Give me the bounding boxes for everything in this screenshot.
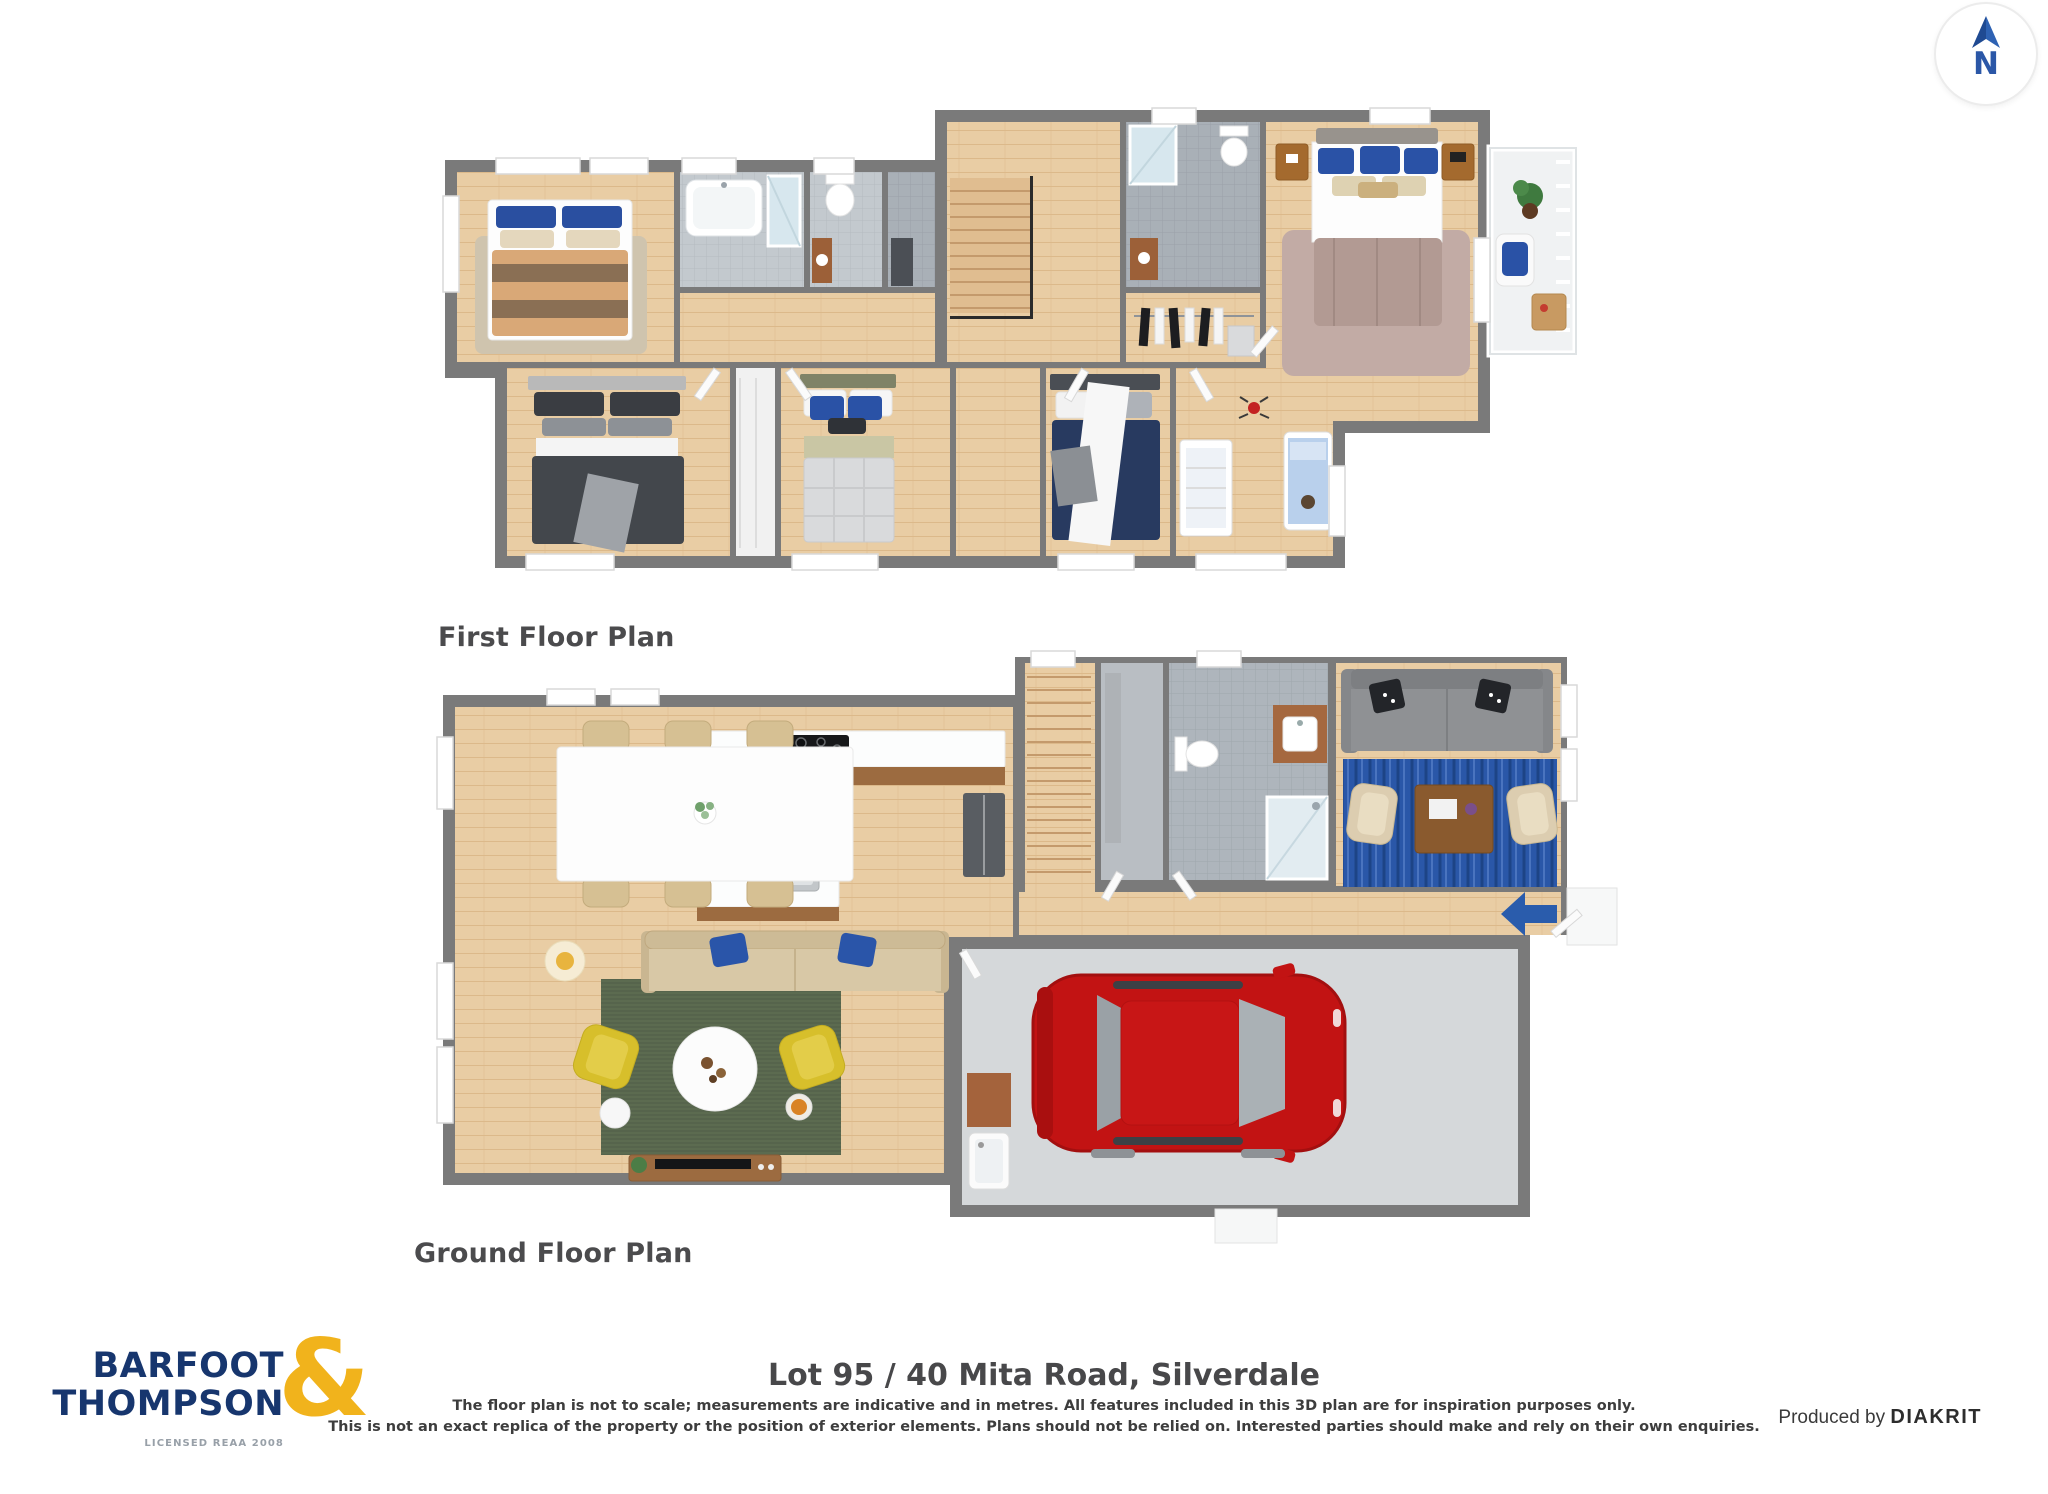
ground-floor-plan-label: Ground Floor Plan bbox=[414, 1238, 693, 1269]
address-title: Lot 95 / 40 Mita Road, Silverdale bbox=[40, 1358, 2048, 1393]
first-floor-bedroom1 bbox=[475, 200, 647, 354]
tv bbox=[655, 1159, 751, 1169]
compass-north-label: N bbox=[1936, 46, 2036, 82]
disclaimer-line1: The floor plan is not to scale; measurem… bbox=[40, 1398, 2048, 1414]
produced-by: Produced by DIAKRIT bbox=[1778, 1406, 1982, 1429]
compass: N bbox=[1934, 2, 2038, 106]
beige-sofa bbox=[645, 931, 945, 949]
laundry-tub-counter bbox=[967, 1073, 1011, 1127]
ground-floor-plan bbox=[415, 645, 1635, 1245]
logo-tagline: LICENSED REAA 2008 bbox=[144, 1438, 284, 1449]
ground-floor-plan-drawing bbox=[415, 645, 1635, 1245]
beige-armchair-right bbox=[1505, 782, 1559, 846]
produced-by-label: Produced by bbox=[1778, 1407, 1885, 1428]
first-floor-master-bedroom bbox=[1276, 128, 1474, 376]
first-floor-stairs bbox=[950, 176, 1033, 319]
first-floor-plan-drawing bbox=[430, 88, 1590, 618]
ground-floor-laundry bbox=[1105, 673, 1121, 843]
first-floor-laundry bbox=[891, 238, 913, 286]
first-floor-bathroom bbox=[686, 176, 800, 246]
round-coffee-table bbox=[673, 1027, 757, 1111]
first-floor-balcony bbox=[1490, 148, 1576, 354]
beige-armchair-left bbox=[1345, 782, 1399, 846]
disclaimer-line2: This is not an exact replica of the prop… bbox=[40, 1419, 2048, 1435]
ground-floor-dining bbox=[557, 721, 853, 907]
red-car bbox=[1033, 962, 1345, 1163]
first-floor-bedroom4 bbox=[1050, 374, 1160, 546]
floorplan-page: N bbox=[0, 0, 2048, 1494]
first-floor-plan bbox=[430, 88, 1590, 618]
outside-step bbox=[1215, 1209, 1277, 1243]
producer-name: DIAKRIT bbox=[1890, 1406, 1982, 1428]
ground-floor-living bbox=[1341, 669, 1559, 887]
